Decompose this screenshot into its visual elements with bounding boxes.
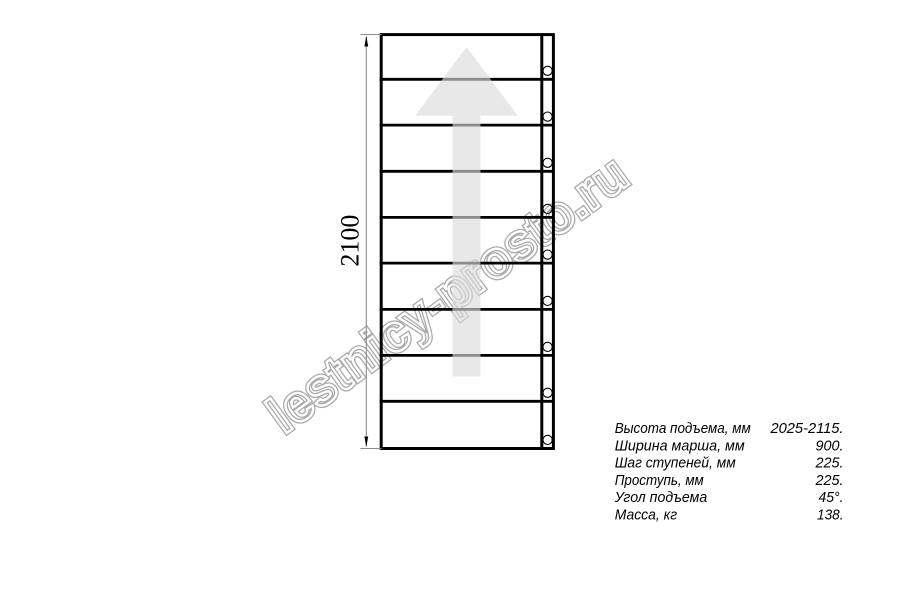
svg-text:Шаг ступеней, мм: Шаг ступеней, мм xyxy=(615,455,736,472)
svg-text:138.: 138. xyxy=(817,506,844,523)
svg-text:2025-2115.: 2025-2115. xyxy=(770,420,844,437)
svg-text:225.: 225. xyxy=(815,472,844,489)
svg-text:Масса, кг: Масса, кг xyxy=(615,506,678,523)
svg-text:Ширина марша, мм: Ширина марша, мм xyxy=(615,437,745,454)
svg-text:900.: 900. xyxy=(816,437,844,454)
svg-text:45°.: 45°. xyxy=(819,489,844,506)
svg-text:Высота подъема, мм: Высота подъема, мм xyxy=(615,420,751,437)
svg-text:Проступь, мм: Проступь, мм xyxy=(615,472,704,489)
svg-text:lestnicy-prosto.ru: lestnicy-prosto.ru xyxy=(257,145,639,445)
svg-text:Угол подъема: Угол подъема xyxy=(614,489,707,506)
svg-text:2100: 2100 xyxy=(335,215,364,267)
svg-text:225.: 225. xyxy=(815,455,844,472)
